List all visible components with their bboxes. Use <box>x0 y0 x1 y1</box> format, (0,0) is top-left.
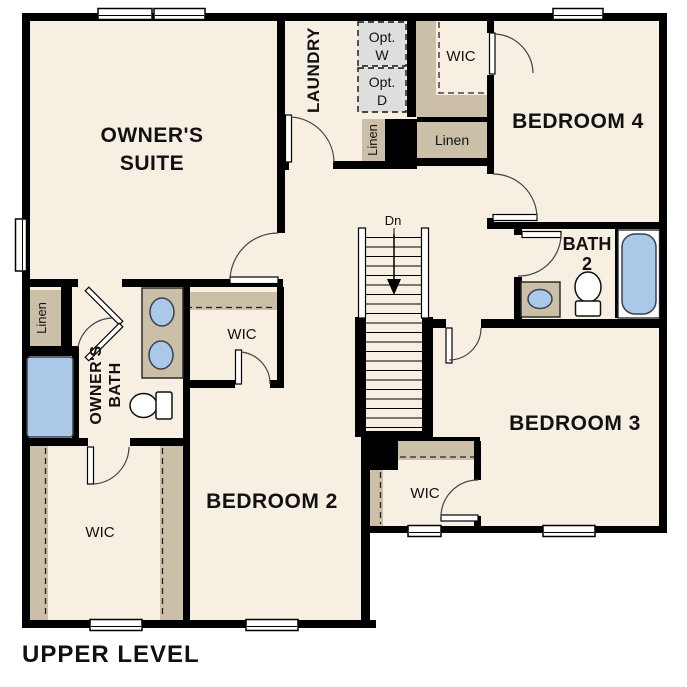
bedroom3-wic-door <box>441 515 478 521</box>
floor-plan-page: OWNER'S SUITE LAUNDRY Opt. W Opt. D Line… <box>0 0 687 687</box>
laundry-door <box>286 115 292 162</box>
owners-wic-shelf-east <box>160 446 183 620</box>
window <box>408 526 441 537</box>
opt-dryer-label2: D <box>377 92 387 108</box>
window <box>16 219 27 271</box>
laundry-label: LAUNDRY <box>304 27 323 113</box>
owners-shower-icon <box>27 357 73 437</box>
bedroom4-wic-door <box>490 33 496 74</box>
window <box>543 526 595 537</box>
bedroom3-door <box>446 328 452 363</box>
bath2-toilet-bowl-icon <box>575 272 601 302</box>
bedroom2-wic-label: WIC <box>227 326 256 343</box>
owners-toilet-tank-icon <box>156 392 172 419</box>
bedroom2-wic-door <box>236 350 242 384</box>
owners-suite-label: OWNER'S <box>101 124 204 147</box>
bath2-sink-icon <box>528 290 552 309</box>
bedroom4-label: BEDROOM 4 <box>512 110 644 133</box>
stairs-dn-label: Dn <box>385 213 402 228</box>
bedroom3-label: BEDROOM 3 <box>509 412 641 435</box>
laundry-linen-label: Linen <box>365 124 380 156</box>
owners-wic-door <box>88 447 94 484</box>
plan-title: UPPER LEVEL <box>22 641 200 668</box>
bath2-toilet-tank-icon <box>576 301 601 316</box>
bath2-door <box>522 232 561 238</box>
owners-sink2-icon <box>149 341 173 369</box>
window <box>98 9 152 20</box>
owners-sink-icon <box>150 298 174 326</box>
bath2-label1: BATH <box>563 234 612 254</box>
owners-bath-label2: BATH <box>107 362 124 407</box>
owners-suite-label2: SUITE <box>120 152 184 175</box>
window <box>154 9 205 20</box>
stair-railing-east <box>422 228 429 318</box>
opt-washer-label1: Opt. <box>369 29 395 45</box>
owners-wic-label: WIC <box>85 524 114 541</box>
floor-plan-drawing: OWNER'S SUITE LAUNDRY Opt. W Opt. D Line… <box>0 0 687 687</box>
owners-suite-door <box>230 277 278 284</box>
hall-linen-label: Linen <box>435 132 469 148</box>
owners-bath-linen-label: Linen <box>34 302 49 334</box>
owners-bath-label1: OWNER'S <box>88 345 105 424</box>
window <box>246 620 298 631</box>
opt-dryer-label1: Opt. <box>369 74 395 90</box>
opt-washer-label2: W <box>375 47 389 63</box>
bath2-tub-icon <box>622 234 656 314</box>
bedroom3-wic-label: WIC <box>410 485 439 502</box>
owners-toilet-bowl-icon <box>130 394 157 418</box>
bedroom2-label: BEDROOM 2 <box>206 490 338 513</box>
bedroom4-wic-shelf-south <box>416 95 487 117</box>
bedroom4-wic-label: WIC <box>446 48 475 65</box>
stair-railing-west <box>359 228 366 318</box>
window <box>90 620 142 631</box>
bath2-label2: 2 <box>582 254 592 274</box>
bedroom4-door <box>493 215 537 221</box>
window <box>553 9 603 20</box>
